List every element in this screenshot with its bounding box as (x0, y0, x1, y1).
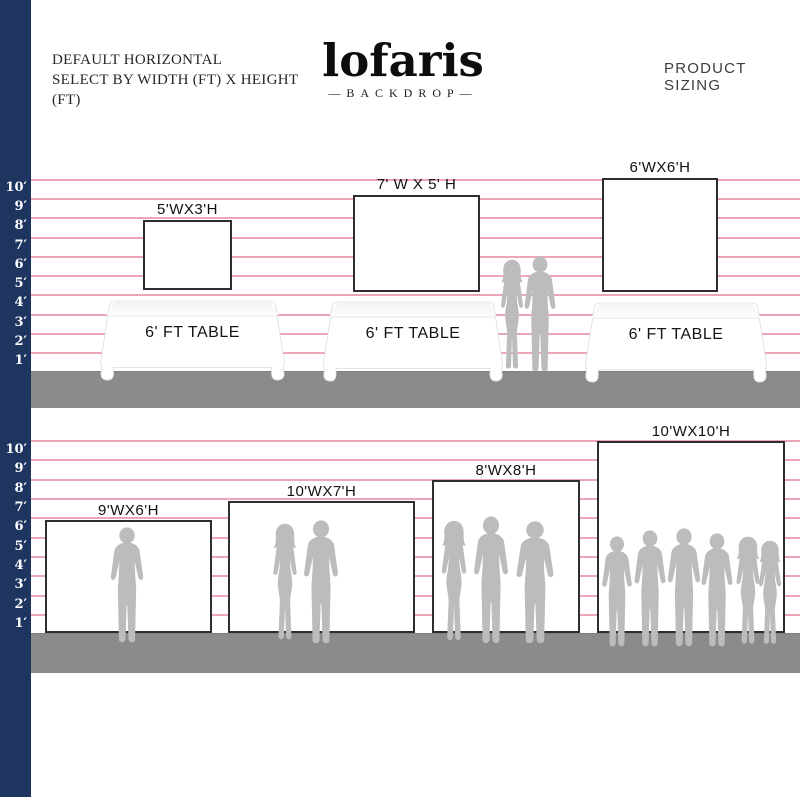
ruler-top-3ft: 3′ (0, 314, 27, 332)
ruler-bottom-3ft: 3′ (0, 576, 27, 594)
table-3: 6' FT TABLE (580, 302, 772, 384)
ruler-bottom-5ft: 5′ (0, 538, 27, 556)
product-sizing-label: PRODUCT SIZING (664, 60, 794, 94)
logo-subtitle: —BACKDROP— (310, 86, 496, 101)
man-silhouette-icon (519, 256, 561, 373)
backdrop-8x8-label: 8'WX8'H (432, 462, 580, 479)
page-title: DEFAULT HORIZONTAL SELECT BY WIDTH (FT) … (52, 50, 322, 110)
ruler-bottom-8ft: 8′ (0, 480, 27, 498)
man-silhouette-icon (298, 520, 344, 645)
man-silhouette-icon (105, 527, 149, 644)
backdrop-6x6-label: 6'WX6'H (602, 159, 718, 176)
brand-logo: lofaris —BACKDROP— (310, 38, 496, 101)
ruler-top-6ft: 6′ (0, 256, 27, 274)
ruler-bottom-2ft: 2′ (0, 596, 27, 614)
backdrop-7x5-label: 7' W X 5' H (353, 176, 480, 193)
backdrop-5x3 (143, 220, 232, 290)
ruler-bottom-4ft: 4′ (0, 557, 27, 575)
ruler-top-2ft: 2′ (0, 333, 27, 351)
table-1: 6' FT TABLE (95, 300, 290, 382)
man-silhouette-icon (510, 521, 560, 645)
ruler-top-7ft: 7′ (0, 237, 27, 255)
ruler-top-1ft: 1′ (0, 352, 27, 370)
man-silhouette-icon (468, 516, 514, 645)
table-3-label: 6' FT TABLE (580, 326, 772, 344)
backdrop-10x7-label: 10'WX7'H (228, 483, 415, 500)
backdrop-10x10-label: 10'WX10'H (597, 423, 785, 440)
ruler-top-4ft: 4′ (0, 294, 27, 312)
ruler-bottom-6ft: 6′ (0, 518, 27, 536)
table-2-label: 6' FT TABLE (318, 325, 508, 343)
ruler-top-5ft: 5′ (0, 275, 27, 293)
ruler-top-8ft: 8′ (0, 217, 27, 235)
product-sizing-page: DEFAULT HORIZONTAL SELECT BY WIDTH (FT) … (0, 0, 800, 800)
logo-wordmark: lofaris (310, 38, 496, 84)
ruler-bar (0, 0, 31, 797)
backdrop-6x6 (602, 178, 718, 292)
backdrop-5x3-label: 5'WX3'H (143, 201, 232, 218)
ruler-bottom-7ft: 7′ (0, 499, 27, 517)
gridline (31, 294, 800, 296)
title-line-2: SELECT BY WIDTH (FT) X HEIGHT (FT) (52, 70, 322, 110)
title-line-1: DEFAULT HORIZONTAL (52, 50, 322, 70)
ruler-bottom-1ft: 1′ (0, 615, 27, 633)
ruler-top-9ft: 9′ (0, 198, 27, 216)
backdrop-7x5 (353, 195, 480, 292)
table-1-label: 6' FT TABLE (95, 324, 290, 342)
ruler-bottom-9ft: 9′ (0, 460, 27, 478)
ruler-bottom-10ft: 10′ (0, 441, 27, 459)
table-2: 6' FT TABLE (318, 301, 508, 383)
ruler-top-10ft: 10′ (0, 179, 27, 197)
woman-silhouette-icon (752, 540, 788, 648)
backdrop-9x6-label: 9'WX6'H (45, 502, 212, 519)
